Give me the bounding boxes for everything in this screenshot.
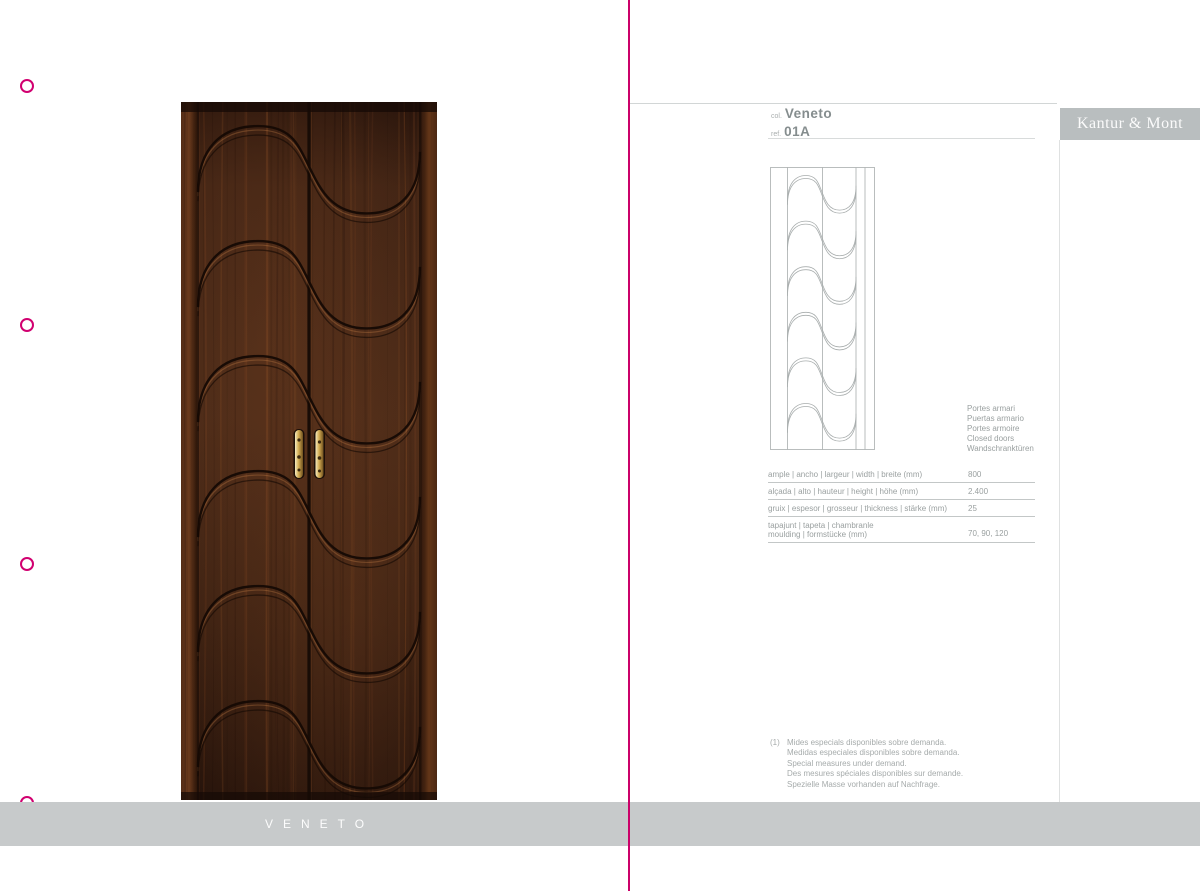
product-header: col. Veneto ref. 01A (771, 106, 832, 142)
collection-banner: VENETO (0, 802, 1200, 846)
caption-line: Puertas armario (967, 414, 1034, 424)
registration-circle (20, 557, 34, 571)
footnote-line: Special measures under demand. (787, 759, 963, 769)
table-row: gruix | espesor | grosseur | thickness |… (768, 500, 1035, 517)
footnote-line: Mides especials disponibles sobre demand… (787, 738, 963, 748)
margin-hairline (1059, 140, 1060, 802)
wardrobe-photo (181, 102, 437, 800)
footnote-lines: Mides especials disponibles sobre demand… (787, 738, 963, 790)
table-row: tapajunt | tapeta | chambranle moulding … (768, 517, 1035, 543)
spec-value: 2.400 (968, 487, 988, 496)
spec-table: ample | ancho | largeur | width | breite… (768, 466, 1035, 543)
brand-banner: Kantur & Mont (1060, 108, 1200, 140)
collection-banner-label: VENETO (0, 802, 629, 846)
table-row: ample | ancho | largeur | width | breite… (768, 466, 1035, 483)
spec-value: 25 (968, 504, 977, 513)
footnote-marker: (1) (770, 738, 787, 790)
wardrobe-door-art (181, 102, 437, 800)
table-row: alçada | alto | hauteur | height | höhe … (768, 483, 1035, 500)
caption-line: Closed doors (967, 434, 1034, 444)
spec-label: ample | ancho | largeur | width | breite… (768, 470, 1035, 479)
collection-label: col. (771, 109, 782, 124)
spec-label: gruix | espesor | grosseur | thickness |… (768, 504, 1035, 513)
registration-circle (20, 79, 34, 93)
page-divider-line (628, 0, 630, 891)
registration-circle (20, 318, 34, 332)
footnote-line: Des mesures spéciales disponibles sur de… (787, 769, 963, 779)
spec-label: alçada | alto | hauteur | height | höhe … (768, 487, 1035, 496)
footnote-line: Spezielle Masse vorhanden auf Nachfrage. (787, 780, 963, 790)
header-underline (768, 138, 1035, 139)
header-rule (630, 103, 1057, 104)
collection-name: Veneto (785, 106, 832, 121)
caption-line: Portes armari (967, 404, 1034, 414)
door-caption: Portes armari Puertas armario Portes arm… (967, 404, 1034, 454)
reference-value: 01A (784, 124, 810, 139)
caption-line: Portes armoire (967, 424, 1034, 434)
brand-name: Kantur & Mont (1077, 115, 1183, 133)
door-schematic (770, 167, 875, 450)
caption-line: Wandschranktüren (967, 444, 1034, 454)
reference-label: ref. (771, 127, 781, 142)
footnote-line: Medidas especiales disponibles sobre dem… (787, 748, 963, 758)
catalog-spread: VENETO col. Veneto ref. 01A Kantur & Mon… (0, 0, 1200, 891)
footnote: (1) Mides especials disponibles sobre de… (770, 738, 963, 790)
spec-value: 70, 90, 120 (968, 529, 1008, 538)
spec-value: 800 (968, 470, 981, 479)
